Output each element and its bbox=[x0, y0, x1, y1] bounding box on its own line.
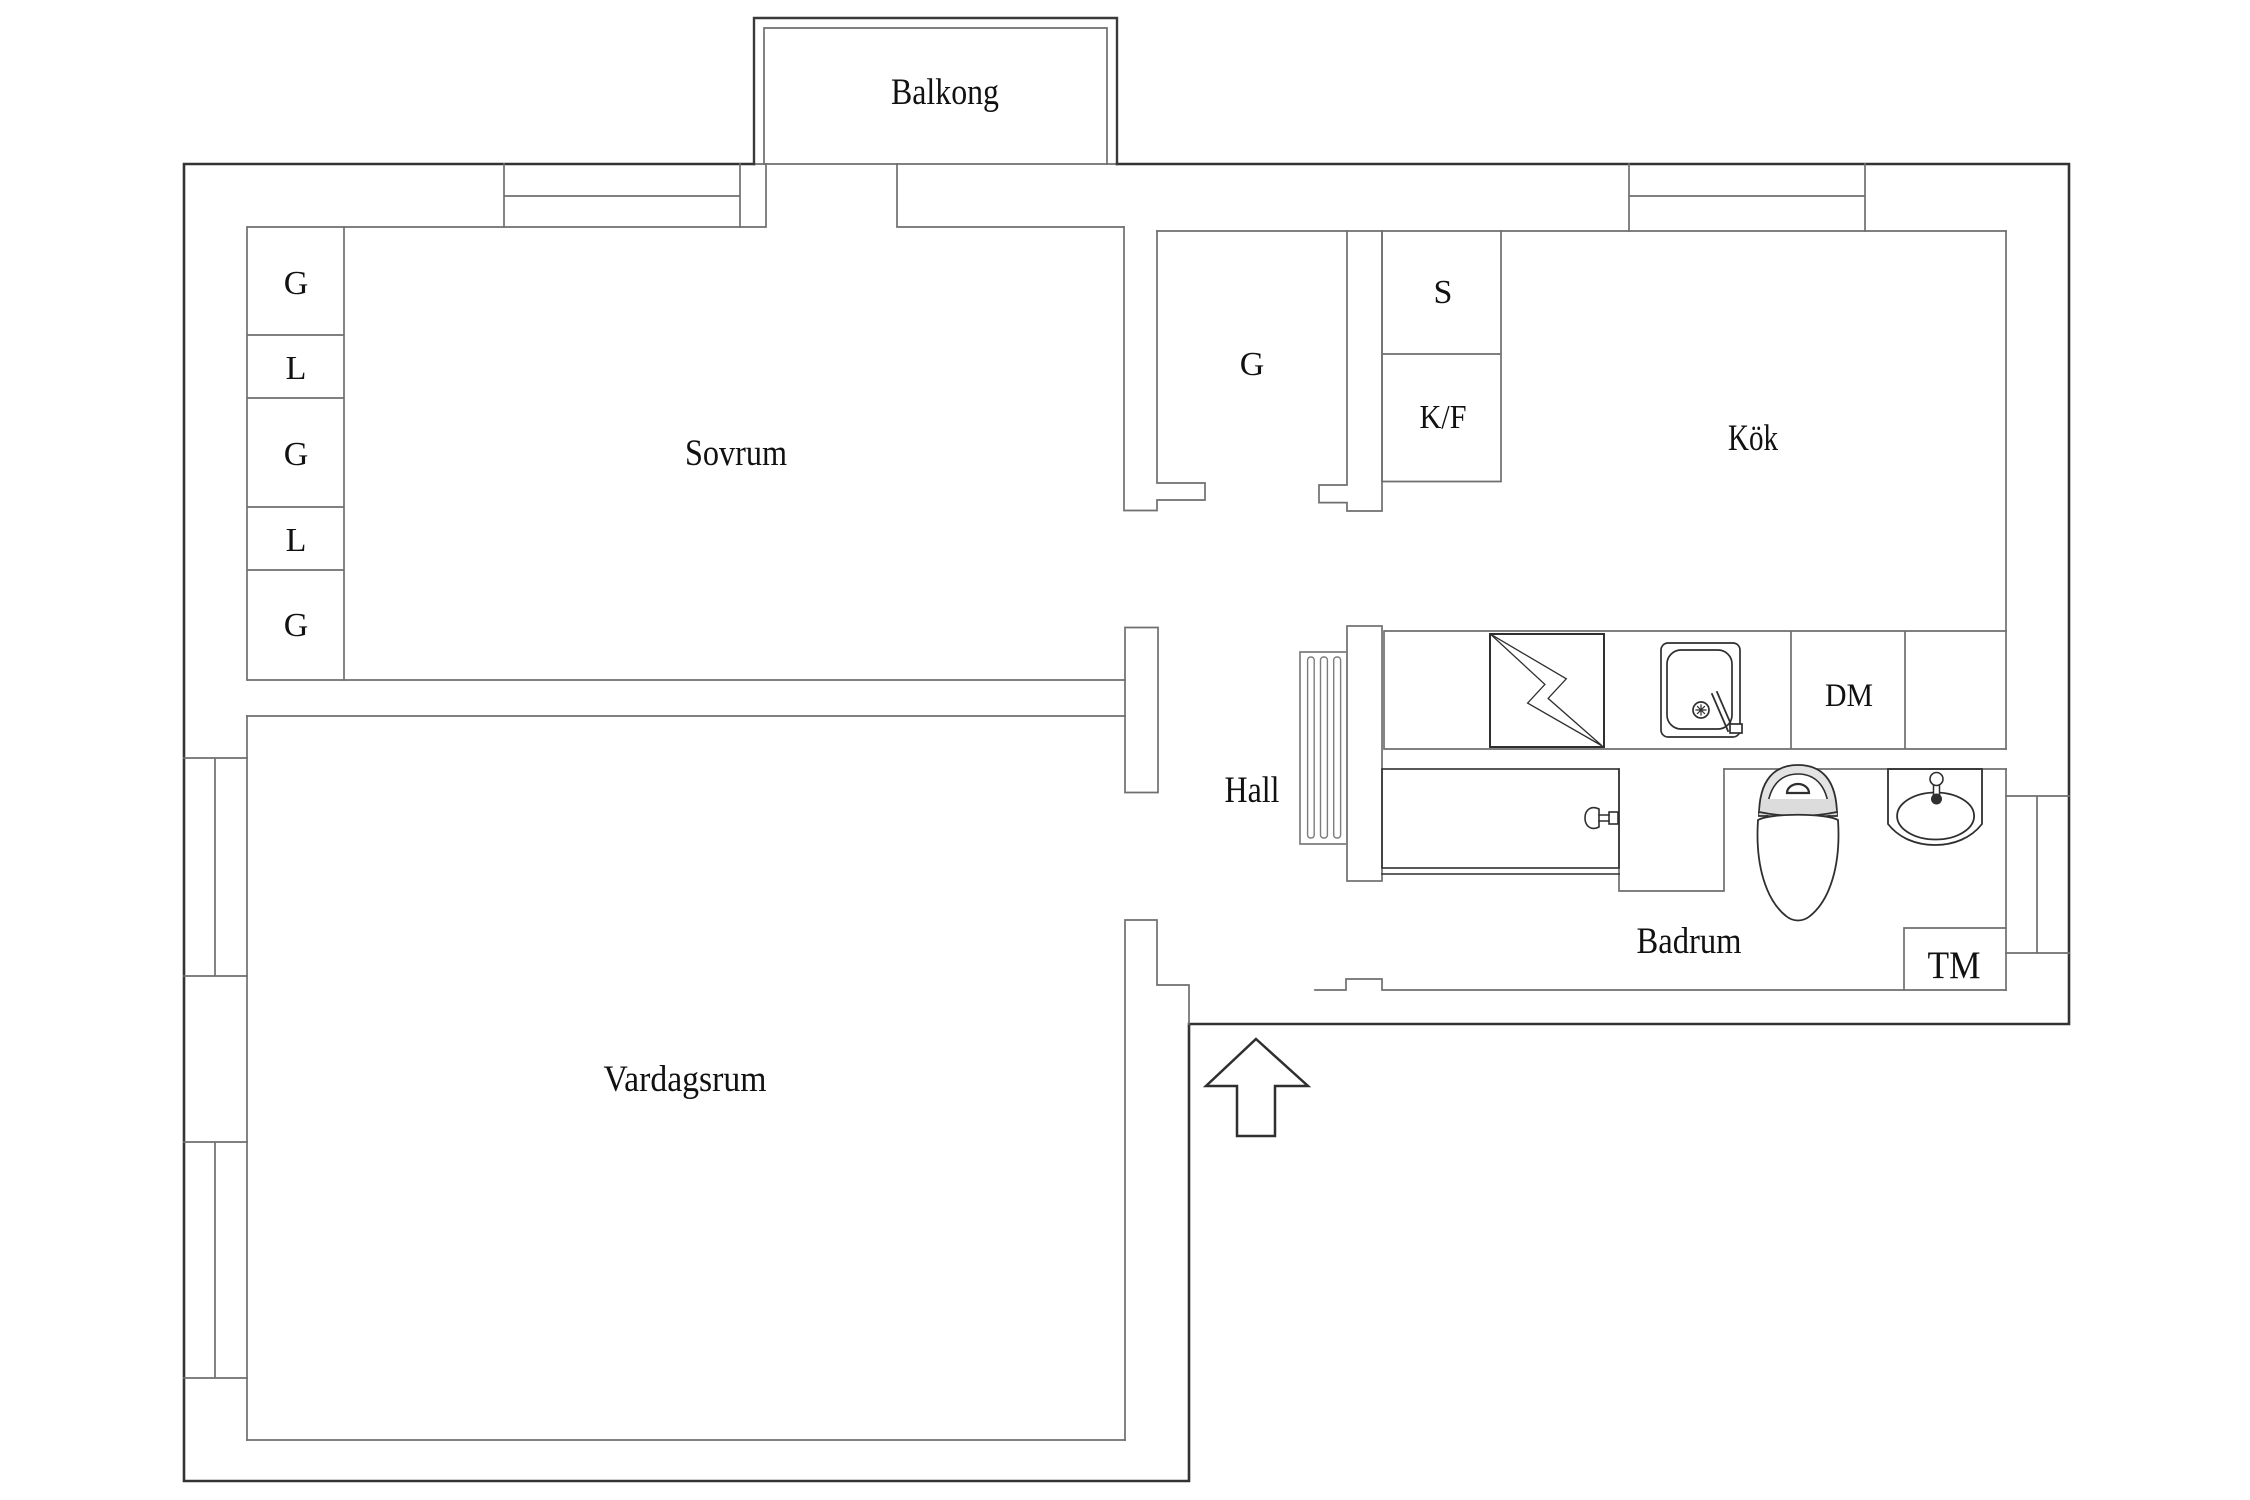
svg-text:G: G bbox=[1240, 346, 1265, 383]
svg-text:Hall: Hall bbox=[1225, 770, 1280, 811]
svg-text:Vardagsrum: Vardagsrum bbox=[604, 1059, 767, 1100]
svg-text:S: S bbox=[1434, 274, 1453, 311]
svg-text:K/F: K/F bbox=[1420, 399, 1467, 436]
svg-text:G: G bbox=[284, 265, 309, 302]
svg-text:Sovrum: Sovrum bbox=[685, 433, 787, 474]
svg-text:L: L bbox=[286, 350, 307, 387]
svg-text:G: G bbox=[284, 607, 309, 644]
svg-text:DM: DM bbox=[1825, 678, 1873, 714]
svg-text:Badrum: Badrum bbox=[1637, 921, 1742, 962]
svg-text:Kök: Kök bbox=[1728, 418, 1778, 459]
svg-text:Balkong: Balkong bbox=[891, 72, 999, 113]
svg-text:L: L bbox=[286, 522, 307, 559]
svg-text:G: G bbox=[284, 436, 309, 473]
svg-text:TM: TM bbox=[1928, 944, 1981, 987]
